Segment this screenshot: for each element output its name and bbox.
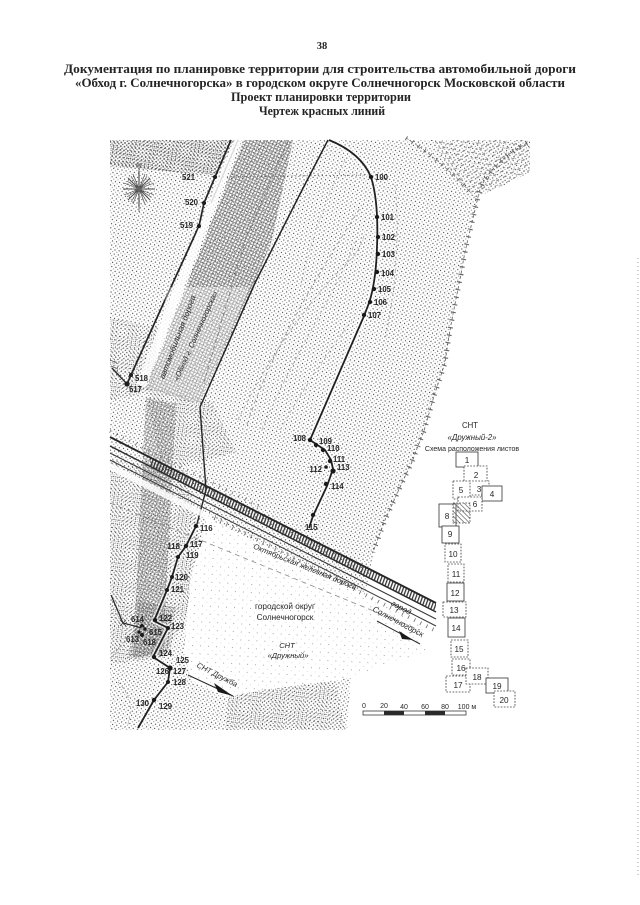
- svg-text:СНТ: СНТ: [462, 421, 478, 430]
- svg-text:102: 102: [382, 233, 396, 242]
- svg-text:Документация по планировке тер: Документация по планировке территории дл…: [64, 62, 576, 76]
- svg-text:8: 8: [445, 512, 450, 521]
- svg-text:110: 110: [327, 444, 340, 453]
- svg-text:615: 615: [149, 628, 163, 637]
- svg-text:«Дружный-2»: «Дружный-2»: [448, 433, 498, 442]
- svg-text:3: 3: [477, 485, 482, 494]
- svg-text:0: 0: [362, 703, 366, 710]
- svg-text:10: 10: [448, 550, 458, 559]
- svg-text:Солнечногорск: Солнечногорск: [257, 613, 314, 622]
- svg-text:130: 130: [136, 699, 150, 708]
- svg-text:40: 40: [400, 704, 408, 711]
- svg-text:113: 113: [337, 463, 350, 472]
- svg-text:12: 12: [450, 589, 460, 598]
- svg-text:128: 128: [173, 678, 187, 687]
- svg-text:108: 108: [293, 434, 307, 443]
- svg-text:100 м: 100 м: [458, 704, 477, 711]
- svg-text:11: 11: [452, 570, 461, 579]
- svg-text:14: 14: [451, 624, 461, 633]
- svg-text:Чертеж красных линий: Чертеж красных линий: [259, 104, 385, 118]
- svg-text:2: 2: [474, 471, 479, 480]
- svg-text:20: 20: [499, 696, 509, 705]
- svg-text:городской округ: городской округ: [255, 602, 315, 611]
- svg-text:20: 20: [380, 703, 388, 710]
- svg-text:15: 15: [454, 645, 464, 654]
- svg-text:106: 106: [374, 298, 388, 307]
- svg-text:114: 114: [331, 482, 344, 491]
- svg-text:38: 38: [317, 41, 328, 52]
- svg-text:80: 80: [441, 704, 449, 711]
- svg-text:СНТ: СНТ: [279, 641, 296, 650]
- svg-text:9: 9: [448, 530, 453, 539]
- svg-text:520: 520: [185, 198, 199, 207]
- svg-text:119: 119: [186, 551, 199, 560]
- svg-text:104: 104: [381, 269, 395, 278]
- svg-text:618: 618: [143, 638, 157, 647]
- svg-text:118: 118: [167, 542, 180, 551]
- svg-text:16: 16: [456, 664, 466, 673]
- svg-text:18: 18: [472, 673, 482, 682]
- svg-text:60: 60: [421, 704, 429, 711]
- svg-text:613: 613: [126, 635, 140, 644]
- svg-text:129: 129: [159, 702, 173, 711]
- svg-text:126: 126: [156, 667, 170, 676]
- svg-text:124: 124: [159, 649, 173, 658]
- svg-text:120: 120: [175, 573, 189, 582]
- svg-text:521: 521: [182, 173, 196, 182]
- svg-text:115: 115: [305, 523, 318, 532]
- svg-text:614: 614: [131, 615, 145, 624]
- svg-text:125: 125: [176, 656, 190, 665]
- svg-text:116: 116: [200, 524, 213, 533]
- svg-text:«Обход г. Солнечногорска» в го: «Обход г. Солнечногорска» в городском ок…: [75, 76, 565, 90]
- svg-text:517: 517: [129, 385, 142, 394]
- svg-text:4: 4: [490, 490, 495, 499]
- svg-text:17: 17: [453, 681, 463, 690]
- svg-text:1: 1: [465, 456, 470, 465]
- svg-text:6: 6: [473, 500, 478, 509]
- svg-text:5: 5: [459, 486, 464, 495]
- svg-text:112: 112: [309, 465, 322, 474]
- svg-text:121: 121: [171, 585, 185, 594]
- svg-text:101: 101: [381, 213, 395, 222]
- svg-text:Проект планировки территории: Проект планировки территории: [231, 90, 411, 104]
- svg-text:«Дружный»: «Дружный»: [268, 651, 309, 660]
- svg-text:519: 519: [180, 221, 194, 230]
- svg-text:123: 123: [171, 622, 185, 631]
- svg-text:518: 518: [135, 374, 149, 383]
- svg-text:127: 127: [173, 667, 186, 676]
- svg-text:107: 107: [368, 311, 381, 320]
- svg-text:103: 103: [382, 250, 396, 259]
- svg-text:19: 19: [492, 682, 502, 691]
- svg-text:100: 100: [375, 173, 389, 182]
- svg-text:117: 117: [190, 540, 203, 549]
- svg-text:105: 105: [378, 285, 392, 294]
- svg-text:13: 13: [449, 606, 459, 615]
